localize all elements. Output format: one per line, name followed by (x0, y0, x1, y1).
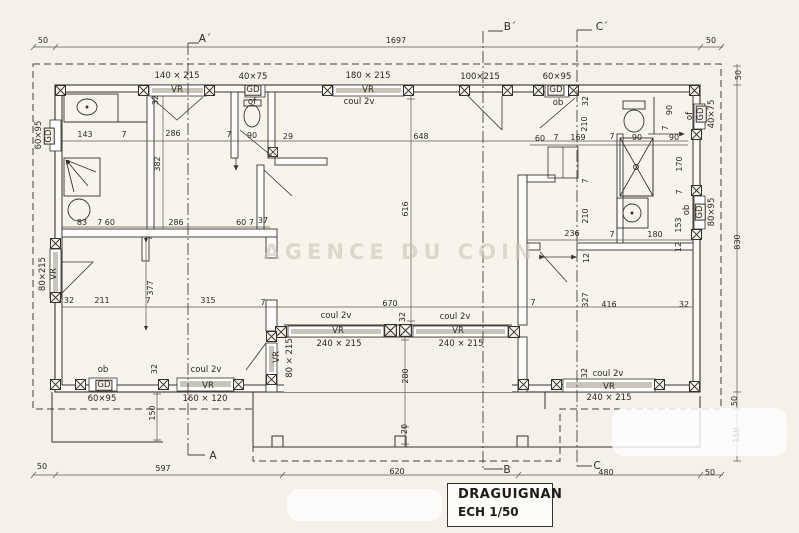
title-block: DRAGUIGNAN ECH 1/50 (447, 483, 553, 527)
window-code-label: GD (696, 105, 707, 122)
dim-label: 153 (675, 217, 683, 232)
dim-label: 60 7 (236, 219, 254, 227)
dim-label: 32 (679, 301, 689, 309)
window-code-label: ob (683, 205, 692, 216)
dim-label: 1697 (386, 37, 406, 45)
dim-label: 7 (260, 299, 265, 307)
dim-label: 32 (399, 312, 407, 322)
dim-label: 143 (77, 131, 92, 139)
dim-label: 37 (258, 217, 268, 225)
window-code-label: GD (547, 85, 564, 96)
window-code-label: VR (332, 327, 344, 336)
dim-label: 286 (165, 130, 180, 138)
dim-label: 7 60 (97, 219, 115, 227)
window-code-label: coul 2v (344, 98, 375, 107)
dim-label: 416 (601, 301, 616, 309)
window-code-label: coul 2v (191, 366, 222, 375)
dim-label: 830 (734, 234, 742, 249)
window-size-label: 140 × 215 (155, 72, 200, 81)
dim-label: 12 (675, 242, 683, 252)
window-code-label: VR (452, 327, 464, 336)
section-mark: C´ (596, 22, 609, 33)
window-size-label: 40×75 (708, 100, 717, 129)
dim-label: 180 (647, 231, 662, 239)
dim-label: 236 (564, 230, 579, 238)
dim-label: 90 (666, 105, 674, 115)
window-size-label: 60×95 (35, 121, 44, 150)
window-code-label: ob (553, 99, 564, 108)
window-code-label: VR (50, 268, 59, 280)
dim-label: 7 (609, 133, 614, 141)
dim-label: 169 (570, 134, 585, 142)
dim-label: 32 (151, 364, 159, 374)
dim-label: 7 (121, 131, 126, 139)
section-mark: B (503, 465, 510, 476)
dim-label: 50 (735, 70, 743, 80)
section-mark: A (209, 451, 216, 462)
dim-label: 7 (609, 231, 614, 239)
dim-label: 50 (705, 469, 715, 477)
window-code-label: GD (44, 127, 55, 144)
dim-label: 327 (582, 292, 590, 307)
floor-plan-page: AGENCE DU COIN 50169750A´B´C´ABC50597620… (0, 0, 799, 533)
window-code-label: coul 2v (321, 312, 352, 321)
dim-label: 20 (401, 424, 409, 434)
dim-label: 50 (37, 463, 47, 471)
dim-label: 211 (94, 297, 109, 305)
dim-label: 7 (553, 134, 558, 142)
window-size-label: 100×215 (460, 73, 500, 82)
window-size-label: 80 × 215 (286, 338, 295, 378)
dim-label: 32 (64, 297, 74, 305)
dim-label: 90 (669, 134, 679, 142)
dim-label: 210 (581, 116, 589, 131)
window-code-label: VR (362, 86, 374, 95)
dim-label: 648 (413, 133, 428, 141)
window-size-label: 240 × 215 (317, 340, 362, 349)
dim-label: 32 (582, 96, 590, 106)
dim-label: 7 (662, 125, 670, 130)
dim-label: 32 (581, 368, 589, 378)
plan-location: DRAGUIGNAN (458, 487, 552, 502)
dim-label: 7 (530, 299, 535, 307)
window-code-label: coul 2v (440, 313, 471, 322)
dim-label: 29 (283, 133, 293, 141)
dim-label: 597 (155, 465, 170, 473)
dim-label: 7 (582, 178, 590, 183)
window-code-label: GD (244, 85, 261, 96)
dim-label: 620 (389, 468, 404, 476)
dim-label: 7 (676, 189, 684, 194)
dim-label: 90 (247, 132, 257, 140)
window-code-label: VR (171, 86, 183, 95)
dim-label: 50 (38, 37, 48, 45)
whiteout-smudge (287, 489, 442, 521)
window-size-label: 180 × 215 (346, 72, 391, 81)
window-size-label: 60×95 (543, 73, 572, 82)
dim-label: 7 (146, 235, 154, 240)
window-code-label: GD (695, 203, 706, 220)
dim-label: 170 (676, 156, 684, 171)
window-size-label: 60×95 (88, 395, 117, 404)
agency-watermark: AGENCE DU COIN (264, 240, 537, 264)
dim-label: 50 (731, 396, 739, 406)
window-size-label: 240 × 215 (439, 340, 484, 349)
dim-label: 480 (598, 469, 613, 477)
window-code-label: VR (273, 351, 282, 363)
dim-label: 150 (149, 405, 157, 420)
window-size-label: 80×215 (39, 257, 48, 291)
dim-label: 210 (582, 208, 590, 223)
dim-label: 50 (706, 37, 716, 45)
window-size-label: 80×95 (708, 198, 717, 227)
dim-label: 12 (583, 253, 591, 263)
dim-label: 7 (226, 131, 231, 139)
window-code-label: ob (98, 366, 109, 375)
plan-scale: ECH 1/50 (458, 505, 552, 519)
window-size-label: 240 × 215 (587, 394, 632, 403)
dim-label: 382 (154, 156, 162, 171)
dim-label: 83 (77, 219, 87, 227)
dim-label: 32 (152, 95, 160, 105)
dim-label: 60 (535, 135, 545, 143)
dim-label: 7 (145, 297, 150, 305)
section-mark: B´ (504, 22, 516, 33)
section-mark: A´ (199, 34, 211, 45)
window-code-label: GD (95, 380, 112, 391)
dim-label: 280 (402, 368, 410, 383)
dim-label: 90 (632, 134, 642, 142)
dim-label: 315 (200, 297, 215, 305)
dim-label: 377 (147, 280, 155, 295)
whiteout-smudge (612, 408, 787, 456)
window-size-label: 160 × 120 (183, 395, 228, 404)
window-code-label: of (686, 112, 695, 120)
dim-label: 286 (168, 219, 183, 227)
window-code-label: VR (202, 382, 214, 391)
window-code-label: of (248, 98, 256, 107)
window-size-label: 40×75 (239, 73, 268, 82)
dim-label: 616 (402, 201, 410, 216)
window-code-label: VR (603, 383, 615, 392)
window-code-label: coul 2v (593, 370, 624, 379)
dim-label: 670 (382, 300, 397, 308)
